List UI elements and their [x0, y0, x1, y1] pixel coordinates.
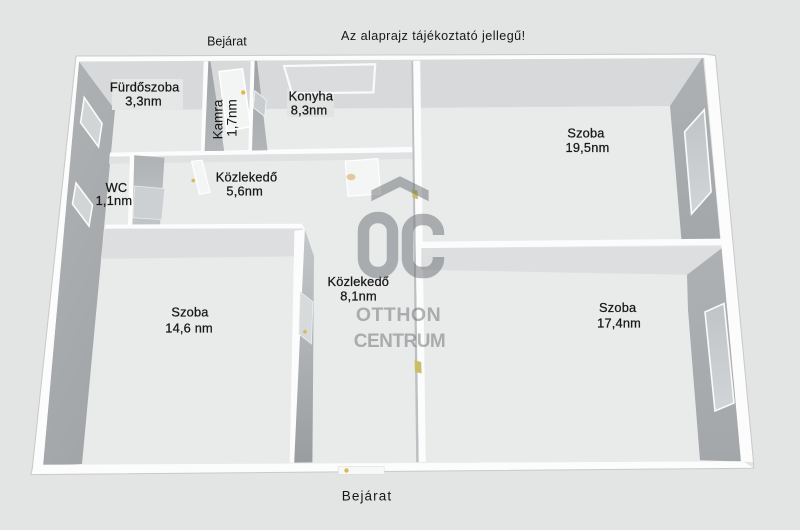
- svg-text:Az alaprajz tájékoztató jelleg: Az alaprajz tájékoztató jellegű!: [341, 29, 526, 43]
- svg-text:Szoba: Szoba: [567, 126, 605, 141]
- svg-text:1,7nm: 1,7nm: [225, 99, 240, 137]
- svg-text:19,5nm: 19,5nm: [566, 140, 610, 155]
- svg-text:3,3nm: 3,3nm: [125, 93, 162, 108]
- svg-text:14,6 nm: 14,6 nm: [165, 321, 213, 336]
- svg-text:OTTHON: OTTHON: [356, 304, 441, 326]
- svg-text:CENTRUM: CENTRUM: [354, 331, 446, 352]
- svg-text:8,1nm: 8,1nm: [340, 288, 377, 303]
- svg-text:Fürdőszoba: Fürdőszoba: [110, 80, 180, 95]
- svg-text:Szoba: Szoba: [599, 300, 637, 315]
- svg-text:8,3nm: 8,3nm: [291, 103, 328, 118]
- svg-text:17,4nm: 17,4nm: [597, 315, 641, 330]
- svg-text:1,1nm: 1,1nm: [96, 193, 133, 208]
- svg-text:Kamra: Kamra: [211, 99, 226, 139]
- svg-text:Közlekedő: Közlekedő: [216, 169, 278, 184]
- svg-text:5,6nm: 5,6nm: [226, 184, 263, 199]
- svg-text:Konyha: Konyha: [289, 89, 334, 104]
- svg-text:Szoba: Szoba: [171, 305, 209, 320]
- svg-text:Bejárat: Bejárat: [207, 35, 247, 49]
- svg-text:Bejárat: Bejárat: [342, 489, 392, 504]
